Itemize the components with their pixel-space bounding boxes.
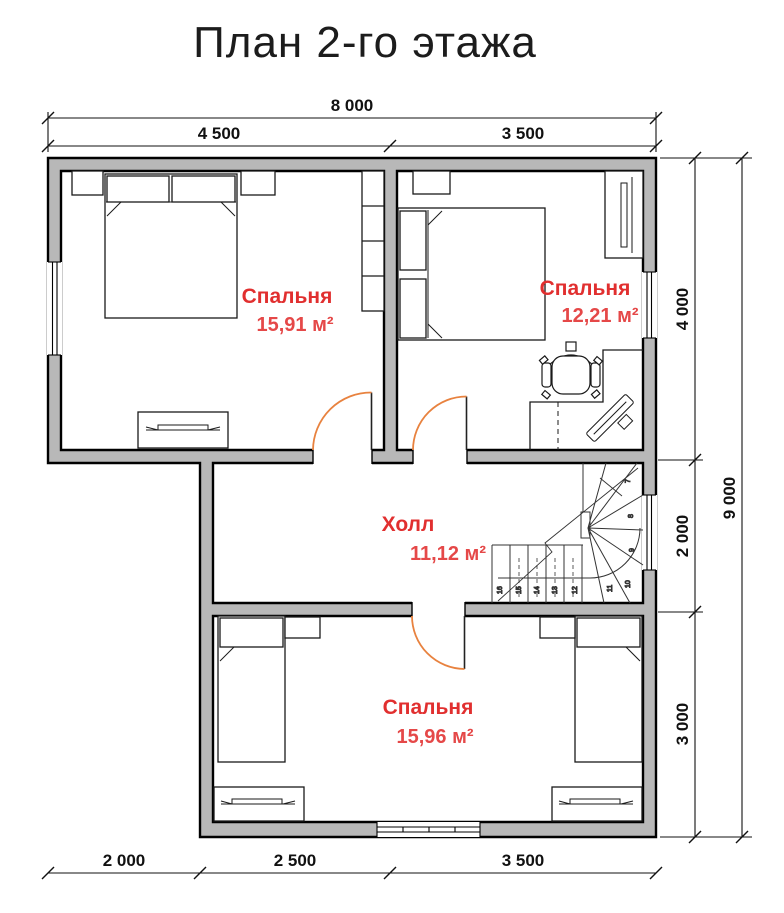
dim-bottom-right: 3 500 bbox=[502, 851, 545, 870]
room-area-bedroom1: 15,91 м² bbox=[256, 314, 333, 336]
pillow-icon bbox=[400, 211, 426, 270]
stair-step-number: 12 bbox=[572, 586, 579, 594]
pillow-icon bbox=[400, 279, 426, 338]
door-opening-bedroom1 bbox=[313, 448, 372, 465]
stair-step-number: 9 bbox=[629, 548, 636, 552]
stairs-icon: 16 15 14 13 12 11 10 9 8 7 bbox=[492, 463, 643, 603]
door-arc bbox=[413, 397, 467, 451]
tv-stand-icon bbox=[552, 787, 642, 821]
room-label-bedroom3: Спальня bbox=[383, 696, 474, 719]
stair-step-number: 11 bbox=[607, 585, 614, 592]
stair-walkline bbox=[498, 528, 640, 578]
dim-bottom-mid: 2 500 bbox=[274, 851, 317, 870]
door-bedroom3 bbox=[412, 616, 465, 669]
floor-plan-svg: 16 15 14 13 12 11 10 9 8 7 Спальня 15,91… bbox=[0, 0, 784, 913]
chair-armrest bbox=[542, 363, 551, 387]
dim-bottom-left: 2 000 bbox=[103, 851, 146, 870]
floor-plan-page: План 2-го этажа bbox=[0, 0, 784, 913]
room-label-hall: Холл bbox=[382, 513, 435, 536]
pillow-icon bbox=[577, 618, 640, 647]
door-bedroom1 bbox=[313, 392, 372, 450]
stair-step-number: 8 bbox=[628, 514, 635, 518]
chair-headrest bbox=[566, 342, 576, 351]
window-bottom-bedroom3 bbox=[377, 822, 480, 837]
nightstand-icon bbox=[540, 617, 575, 638]
dim-right-total: 9 000 bbox=[720, 477, 739, 520]
stair-step-number: 14 bbox=[534, 586, 541, 594]
room-label-bedroom2: Спальня bbox=[540, 277, 631, 300]
stair-step-number: 10 bbox=[625, 580, 632, 588]
office-chair-icon bbox=[539, 342, 602, 399]
dim-top-total: 8 000 bbox=[331, 96, 374, 115]
nightstand-icon bbox=[241, 171, 275, 195]
dim-right-mid: 2 000 bbox=[673, 515, 692, 558]
room-area-hall: 11,12 м² bbox=[410, 543, 486, 565]
nightstand-icon bbox=[413, 171, 450, 194]
door-arc bbox=[412, 616, 465, 669]
room-area-bedroom2: 12,21 м² bbox=[561, 305, 638, 327]
chair-foot bbox=[591, 390, 600, 398]
room-label-bedroom1: Спальня bbox=[242, 285, 333, 308]
door-opening-bedroom2 bbox=[413, 448, 467, 465]
chair-foot bbox=[542, 391, 551, 399]
tv-stand-icon bbox=[214, 787, 304, 821]
pillow-icon bbox=[220, 618, 283, 647]
window-right-bedroom2 bbox=[642, 272, 657, 338]
chair-seat bbox=[552, 356, 590, 394]
stair-step-number: 7 bbox=[625, 479, 632, 483]
window-right-stairs bbox=[642, 495, 657, 570]
nightstand-icon bbox=[72, 171, 103, 195]
tv-icon bbox=[621, 183, 627, 247]
tv-stand-icon bbox=[138, 412, 228, 448]
dim-top-right: 3 500 bbox=[502, 124, 545, 143]
dim-top-left: 4 500 bbox=[198, 124, 241, 143]
pillow-icon bbox=[107, 176, 169, 202]
door-arc bbox=[313, 392, 372, 450]
door-bedroom2 bbox=[413, 397, 467, 451]
furniture-bedroom1 bbox=[72, 171, 384, 448]
nightstand-icon bbox=[285, 617, 320, 638]
tv-cabinet-icon bbox=[605, 171, 643, 258]
stair-step-number: 13 bbox=[552, 586, 559, 594]
dim-right-bottom: 3 000 bbox=[673, 703, 692, 746]
room-area-bedroom3: 15,96 м² bbox=[396, 726, 473, 748]
window-left-bedroom1 bbox=[47, 262, 62, 355]
wardrobe-icon bbox=[362, 171, 384, 311]
pillow-icon bbox=[172, 176, 235, 202]
stair-step-number: 16 bbox=[497, 586, 504, 594]
stair-step-number: 15 bbox=[516, 586, 523, 594]
page-title: План 2-го этажа bbox=[0, 18, 730, 68]
dim-right-top: 4 000 bbox=[673, 288, 692, 331]
chair-armrest bbox=[591, 363, 600, 387]
door-opening-bedroom3 bbox=[412, 601, 465, 618]
